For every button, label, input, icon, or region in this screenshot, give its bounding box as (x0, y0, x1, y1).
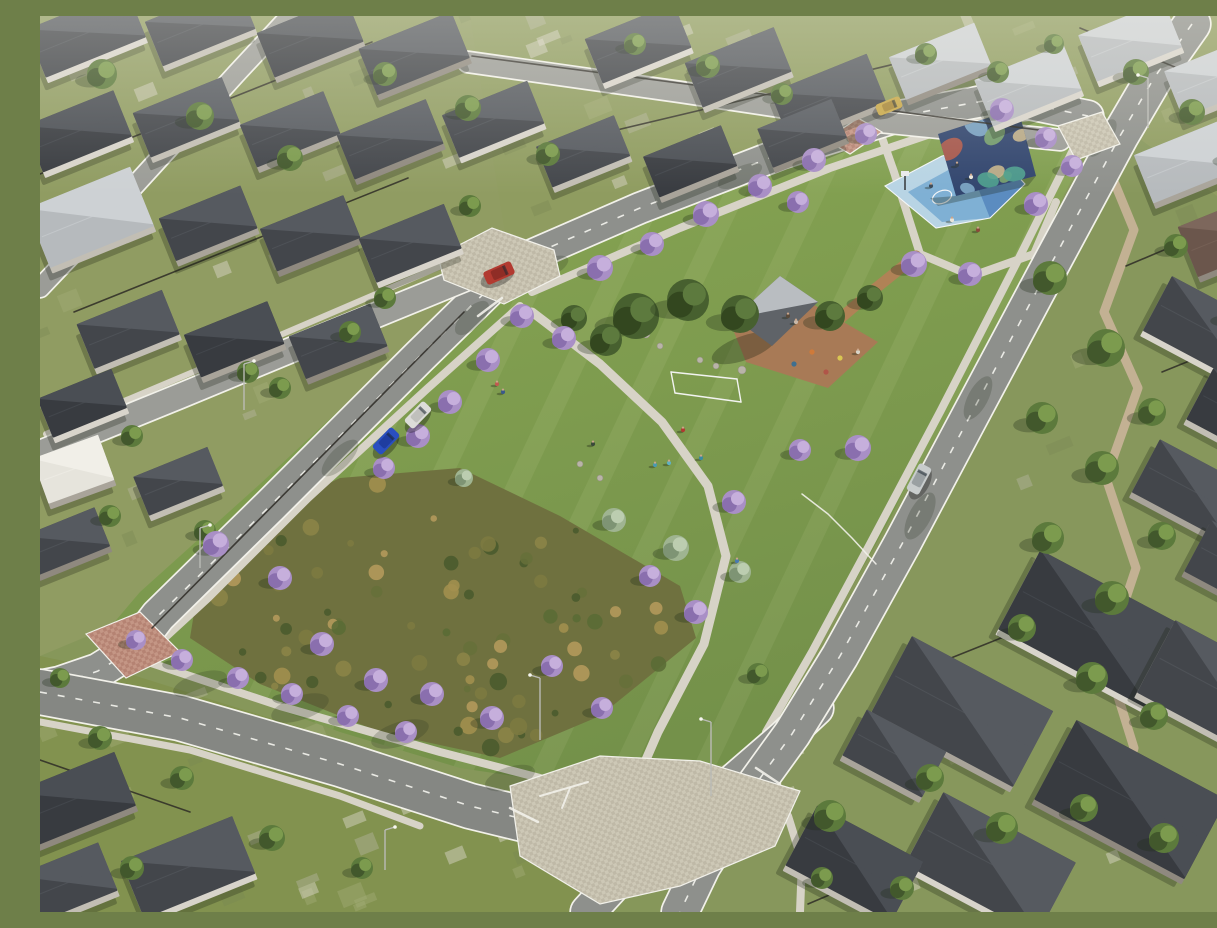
scene-canvas (40, 16, 1217, 912)
haze-overlay (40, 16, 1217, 912)
aerial-community-render (40, 16, 1217, 912)
